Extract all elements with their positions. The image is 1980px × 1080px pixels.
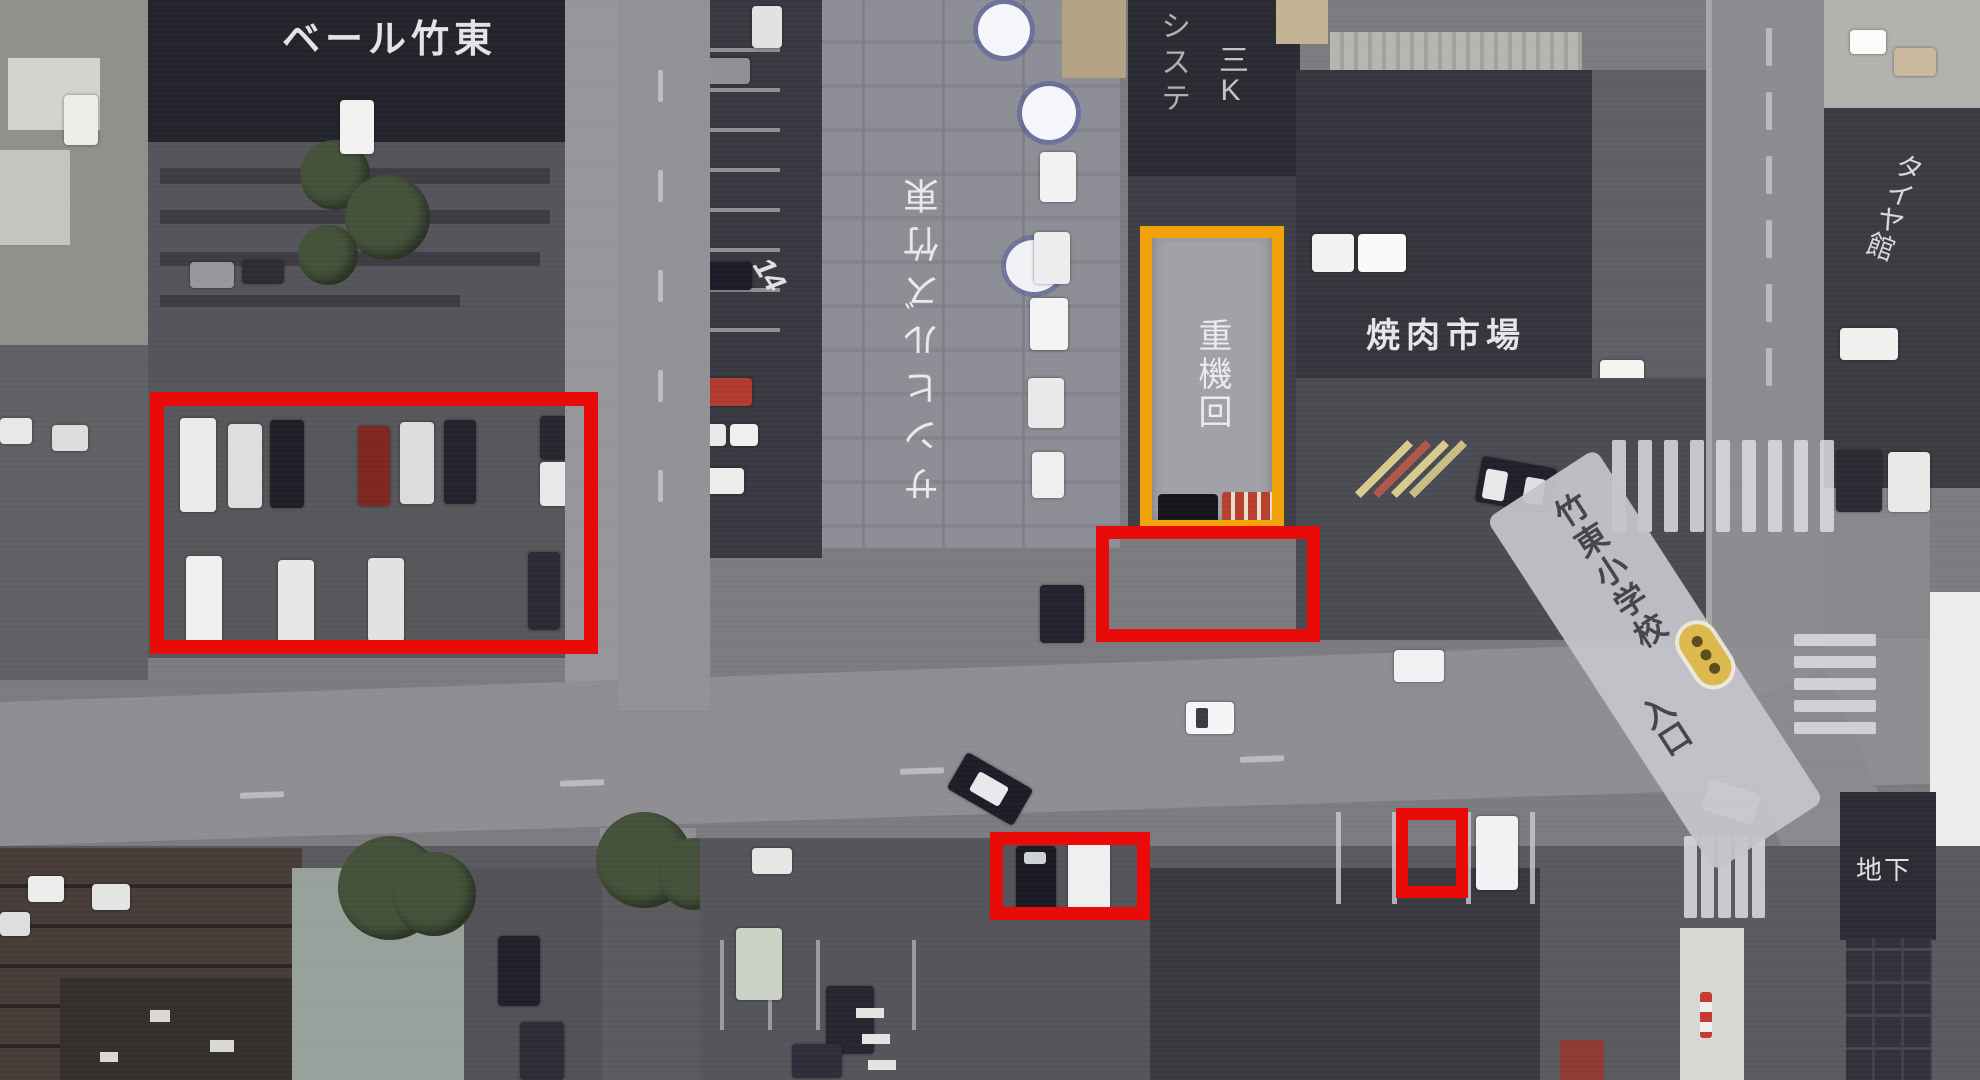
annotation-box-parking-center (1096, 526, 1320, 642)
annotation-box-parking-south (990, 832, 1150, 920)
annotation-box-parking-west (150, 392, 598, 654)
aerial-photo: ベール竹東 14 サンヒルズ竹東 システ 三K 重機回 焼肉市場 タイヤ館 地下… (0, 0, 1980, 1080)
annotation-box-truck (1140, 226, 1284, 532)
annotation-layer (0, 0, 1980, 1080)
annotation-box-stall-southeast (1396, 808, 1468, 898)
